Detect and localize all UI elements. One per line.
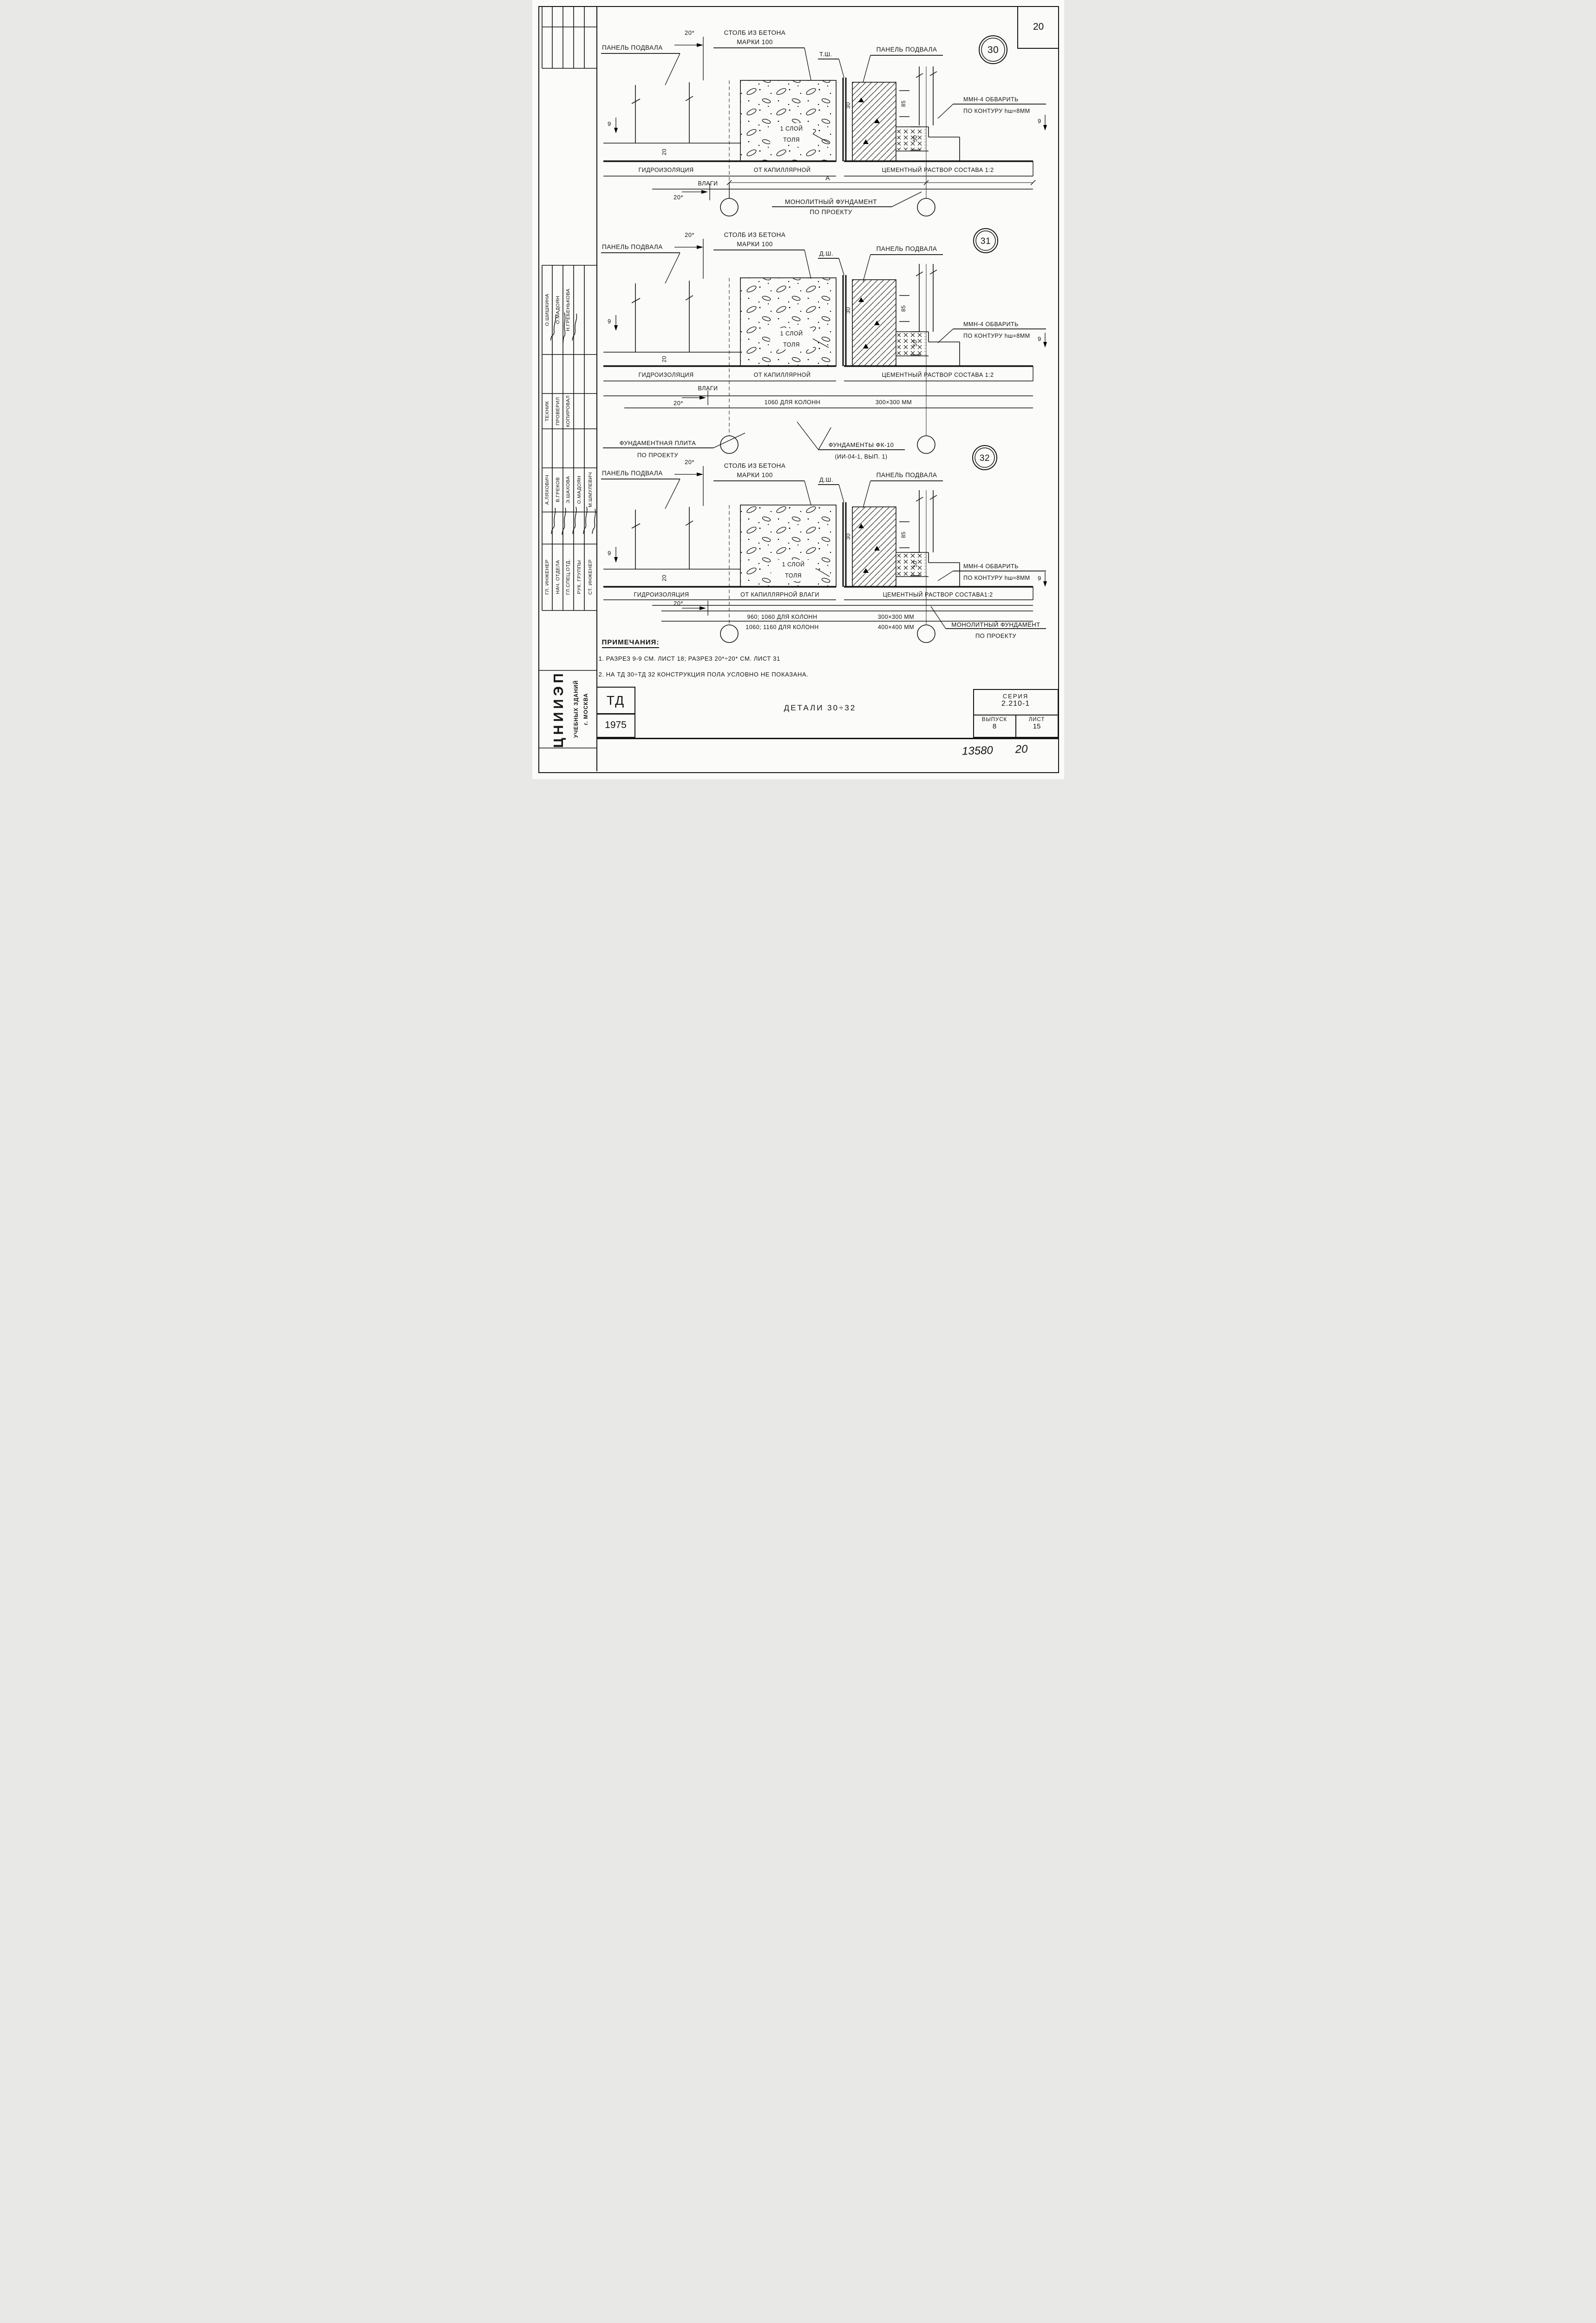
panel-right-label: ПАНЕЛЬ ПОДВАЛА [876,46,937,53]
staff-top-name-3: Н.ГРЕБЕНЬКОВА [564,270,572,349]
dim-offset-bottom-label: 20* [674,600,683,607]
tol-label-line2: ТОЛЯ [783,137,800,143]
weld-label-line2: ПО КОНТУРУ hш=8ММ [963,108,1030,114]
note-item-1: 1. РАЗРЕЗ 9-9 СМ. ЛИСТ 18; РАЗРЕЗ 20*÷20… [599,655,780,662]
joint-label: Т.Ш. [819,51,832,58]
org-line3: г. МОСКВА [582,665,590,753]
weld-label-line2: ПО КОНТУРУ hш=8ММ [963,333,1030,339]
hydro-label-left: ГИДРОИЗОЛЯЦИЯ [638,167,693,173]
series-value: 2.210-1 [974,700,1058,708]
dim-joint: 30 [845,533,851,540]
column-label-line1: СТОЛБ ИЗ БЕТОНА [724,231,785,238]
hydro-label-mid: ОТ КАПИЛЛЯРНОЙ ВЛАГИ [740,591,819,598]
stamp-page: 20 [1015,743,1028,756]
stamp-number: 13580 [962,744,993,758]
foundation-label-line2: ПО ПРОЕКТУ [810,209,852,216]
issue-label: ВЫПУСК [974,715,1015,722]
section-mark-left: 9 [608,550,611,557]
columns-row2-left: 1060; 1160 ДЛЯ КОЛОНН [746,624,818,630]
hydro-label-bottom: ВЛАГИ [698,180,718,187]
staff-top-role-3: КОПИРОВАЛ [564,372,572,451]
axis-circle [917,198,935,216]
dim-offset-bottom-label: 20* [674,400,683,407]
detail-31-drawing: 20* СТОЛБ ИЗ БЕТОНА МАРКИ 100 ПАНЕЛЬ ПОД… [596,223,1059,461]
section-mark-left: 9 [608,120,611,127]
detail-31-geometry [601,229,1047,453]
detail-30-drawing: 20* СТОЛБ ИЗ БЕТОНА МАРКИ 100 ПАНЕЛЬ ПОД… [596,26,1059,221]
hydro-label-bottom: ВЛАГИ [698,385,718,392]
detail-32-drawing: 20* СТОЛБ ИЗ БЕТОНА МАРКИ 100 ПАНЕЛЬ ПОД… [596,444,1059,646]
hydro-label-left: ГИДРОИЗОЛЯЦИЯ [638,372,693,378]
cement-label: ЦЕМЕНТНЫЙ РАСТВОР СОСТАВА 1:2 [882,166,994,173]
hydro-label-mid: ОТ КАПИЛЛЯРНОЙ [753,371,811,378]
dim-offset-top-label: 20* [685,29,694,36]
dim-offset-top-label: 20* [685,459,694,466]
sheet-value: 15 [1016,722,1058,730]
series-label: СЕРИЯ [974,690,1058,700]
dim-offset-top-label: 20* [685,231,694,238]
staff-top-role-1: ТЕХНИК [543,372,551,451]
columns-row1-left: 960; 1060 ДЛЯ КОЛОНН [747,614,817,620]
tol-label-line2: ТОЛЯ [785,572,802,579]
staff-bottom-role-5: СТ. ИНЖЕНЕР [586,538,595,617]
columns-row2-right: 400×400 ММ [877,624,914,630]
dim-85: 85 [900,305,907,312]
title-strip-line [596,738,1059,739]
staff-bottom-name-5: М.ШМУЛЕВИЧ [586,450,595,529]
hydro-label-mid: ОТ КАПИЛЛЯРНОЙ [753,166,811,173]
panel-right-label: ПАНЕЛЬ ПОДВАЛА [876,472,937,479]
foundation-label-line1: МОНОЛИТНЫЙ ФУНДАМЕНТ [951,621,1040,628]
detail-32-geometry [601,446,1047,643]
dim-85: 85 [900,100,907,107]
columns-row1-right: 300×300 ММ [875,399,911,406]
tol-label-line1: 1 СЛОЙ [780,330,803,337]
column-label-line1: СТОЛБ ИЗ БЕТОНА [724,29,785,36]
detail-30-geometry [601,36,1047,216]
column-label-line1: СТОЛБ ИЗ БЕТОНА [724,462,785,469]
dim-50: 50 [912,561,918,567]
staff-bottom-role-4: РУК. ГРУППЫ [575,538,583,617]
org-line2: УЧЕБНЫХ ЗДАНИЙ [573,665,580,753]
joint-label: Д.Ш. [819,250,833,257]
dim-slab: 20 [661,356,667,362]
foundation-label-line2: ПО ПРОЕКТУ [975,632,1016,639]
drawing-title: ДЕТАЛИ 30÷32 [732,703,909,713]
weld-label-line1: ММН-4 ОБВАРИТЬ [963,96,1019,103]
panel-left-label: ПАНЕЛЬ ПОДВАЛА [602,243,663,250]
section-mark-right: 9 [1038,118,1041,125]
staff-top-role-2: ПРОВЕРИЛ [554,372,562,451]
panel-left-label: ПАНЕЛЬ ПОДВАЛА [602,470,663,477]
section-mark-left: 9 [608,318,611,325]
dim-85: 85 [900,532,907,538]
joint-label: Д.Ш. [819,476,833,483]
staff-bottom-name-3: Э.ШАХОВА [564,450,572,529]
dim-50: 50 [912,340,918,347]
dim-slab: 20 [661,149,667,155]
mark-value: ТД [607,693,625,708]
staff-top-name-1: О.ШИШКИНА [543,270,551,349]
staff-bottom-role-3: ГЛ.СПЕЦ.ОТД. [564,538,572,617]
tol-label-line1: 1 СЛОЙ [782,561,805,568]
columns-row1-left: 1060 ДЛЯ КОЛОНН [764,399,820,406]
note-item-2: 2. НА ТД 30÷ТД 32 КОНСТРУКЦИЯ ПОЛА УСЛОВ… [599,671,809,678]
section-mark-right: 9 [1038,335,1041,342]
dim-joint: 30 [845,102,851,109]
staff-bottom-role-2: НАЧ. ОТДЕЛА [554,538,562,617]
cement-label: ЦЕМЕНТНЫЙ РАСТВОР СОСТАВА1:2 [883,591,993,598]
axis-circle [917,625,935,643]
column-label-line2: МАРКИ 100 [737,241,773,248]
column-label-line2: МАРКИ 100 [737,472,773,479]
staff-top-name-2: О.МАДОЯН [554,270,562,349]
column-label-line2: МАРКИ 100 [737,39,773,46]
mark-box: ТД [596,687,635,715]
staff-bottom-name-2: В.ГРЕКОВ [554,450,562,529]
section-mark-right: 9 [1038,575,1041,582]
hydro-label-left: ГИДРОИЗОЛЯЦИЯ [634,591,689,598]
weld-label-line1: ММН-4 ОБВАРИТЬ [963,321,1019,328]
axis-circle [720,198,738,216]
year-value: 1975 [605,720,627,730]
drawing-sheet: 20 О.ШИШКИНА О.МАДО [532,0,1064,779]
cement-label: ЦЕМЕНТНЫЙ РАСТВОР СОСТАВА 1:2 [882,371,994,378]
sheet-label: ЛИСТ [1016,715,1058,722]
detail-number: 32 [979,453,989,463]
panel-right-label: ПАНЕЛЬ ПОДВАЛА [876,245,937,252]
panel-left-label: ПАНЕЛЬ ПОДВАЛА [602,44,663,51]
series-block: СЕРИЯ 2.210-1 ВЫПУСК 8 ЛИСТ 15 [973,689,1059,738]
detail-number: 30 [987,45,998,55]
detail-number: 31 [980,236,990,246]
dim-50: 50 [912,135,918,142]
dim-slab: 20 [661,575,667,581]
axis-circle [720,625,738,643]
columns-row1-right: 300×300 ММ [877,614,914,620]
foundation-label-line1: МОНОЛИТНЫЙ ФУНДАМЕНТ [785,198,876,205]
dim-joint: 30 [845,307,851,314]
tol-label-line2: ТОЛЯ [783,341,800,348]
weld-label-line2: ПО КОНТУРУ hш=8ММ [963,575,1030,581]
staff-bottom-name-4: О.МАДОЯН [575,450,583,529]
weld-label-line1: ММН-4 ОБВАРИТЬ [963,563,1019,570]
org-name: ЦНИИЭП [549,658,568,760]
staff-bottom-name-1: А.ЛЯХОВИЧ [543,450,551,529]
dim-span-label: А [825,174,830,182]
issue-value: 8 [974,722,1015,730]
staff-bottom-role-1: ГЛ. ИНЖЕНЕР [543,538,551,617]
year-box: 1975 [596,713,635,738]
tol-label-line1: 1 СЛОЙ [780,125,803,132]
dim-offset-bottom-label: 20* [674,194,683,201]
